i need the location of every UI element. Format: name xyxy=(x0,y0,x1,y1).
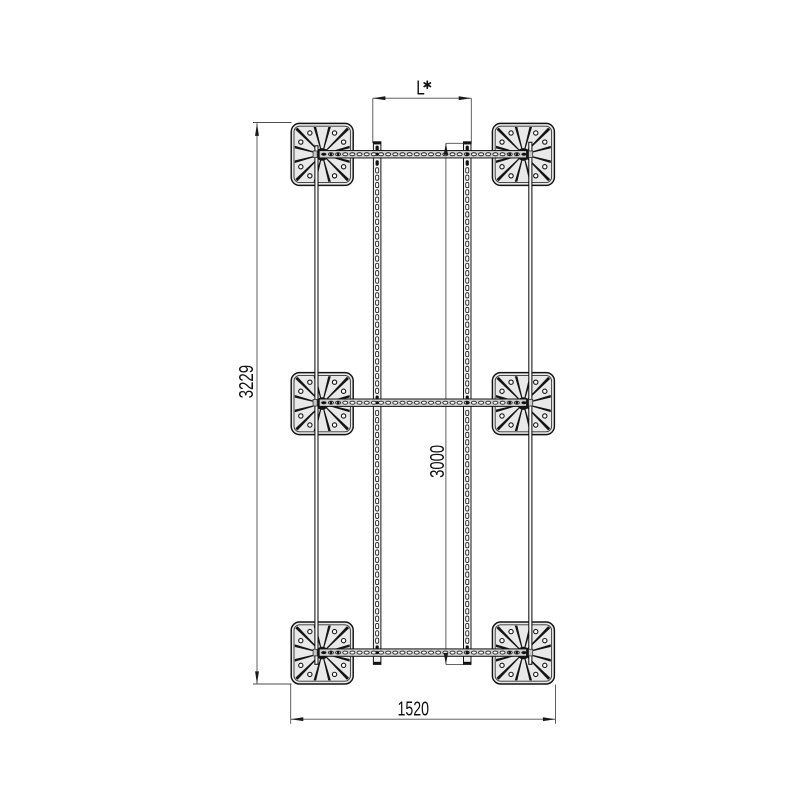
svg-text:3229: 3229 xyxy=(236,365,258,399)
svg-text:1520: 1520 xyxy=(398,699,430,721)
svg-text:L: L xyxy=(416,78,425,100)
